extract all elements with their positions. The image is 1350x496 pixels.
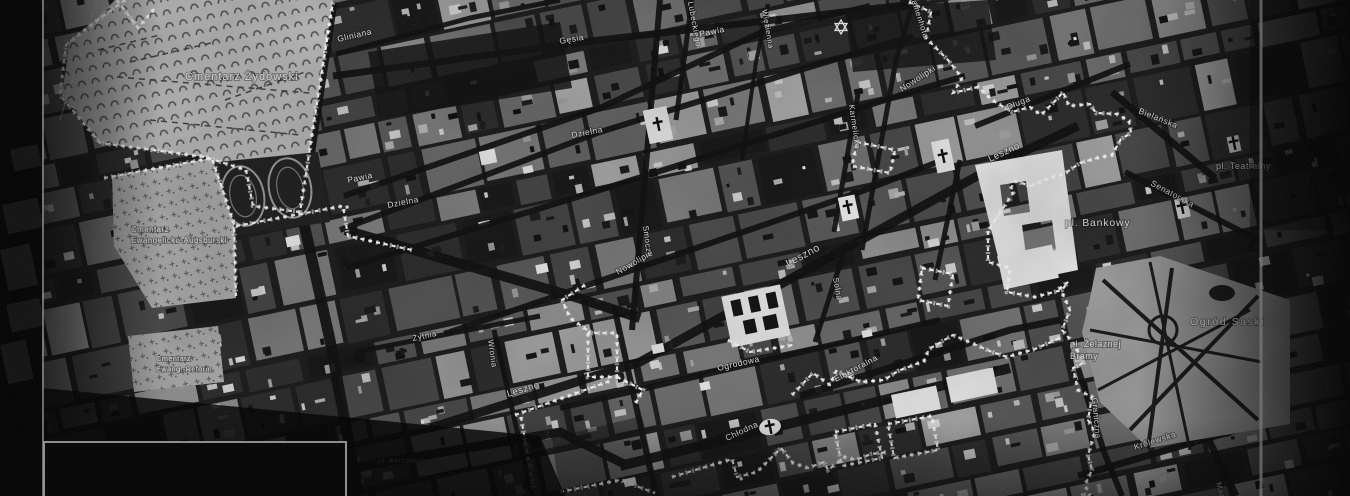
- map-viewport[interactable]: GlinianaGęsiaLubeckiegoZamenhofaPawiaPaw…: [0, 0, 1350, 496]
- photo-grain-overlay: [0, 0, 1350, 496]
- warsaw-ghetto-map: GlinianaGęsiaLubeckiegoZamenhofaPawiaPaw…: [0, 0, 1350, 496]
- inset-panel: [44, 442, 346, 496]
